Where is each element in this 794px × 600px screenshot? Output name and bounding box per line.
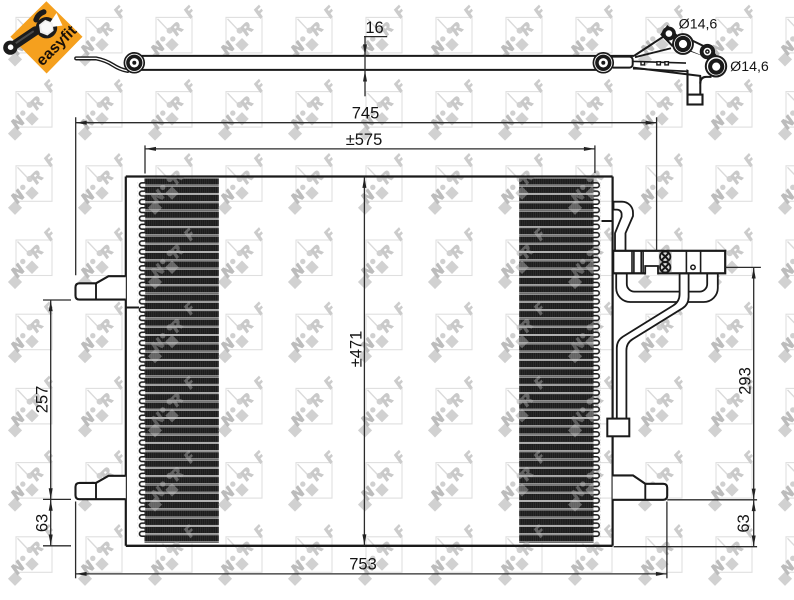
- svg-text:Ø14,6: Ø14,6: [679, 16, 718, 32]
- svg-text:63: 63: [33, 514, 51, 532]
- svg-text:745: 745: [352, 105, 380, 123]
- svg-text:293: 293: [736, 367, 754, 395]
- svg-text:16: 16: [365, 19, 383, 37]
- svg-text:Ø14,6: Ø14,6: [730, 59, 769, 75]
- svg-text:257: 257: [33, 386, 51, 414]
- svg-text:±575: ±575: [346, 131, 383, 149]
- svg-text:63: 63: [735, 514, 753, 532]
- svg-text:±471: ±471: [348, 331, 366, 368]
- svg-text:753: 753: [349, 555, 377, 573]
